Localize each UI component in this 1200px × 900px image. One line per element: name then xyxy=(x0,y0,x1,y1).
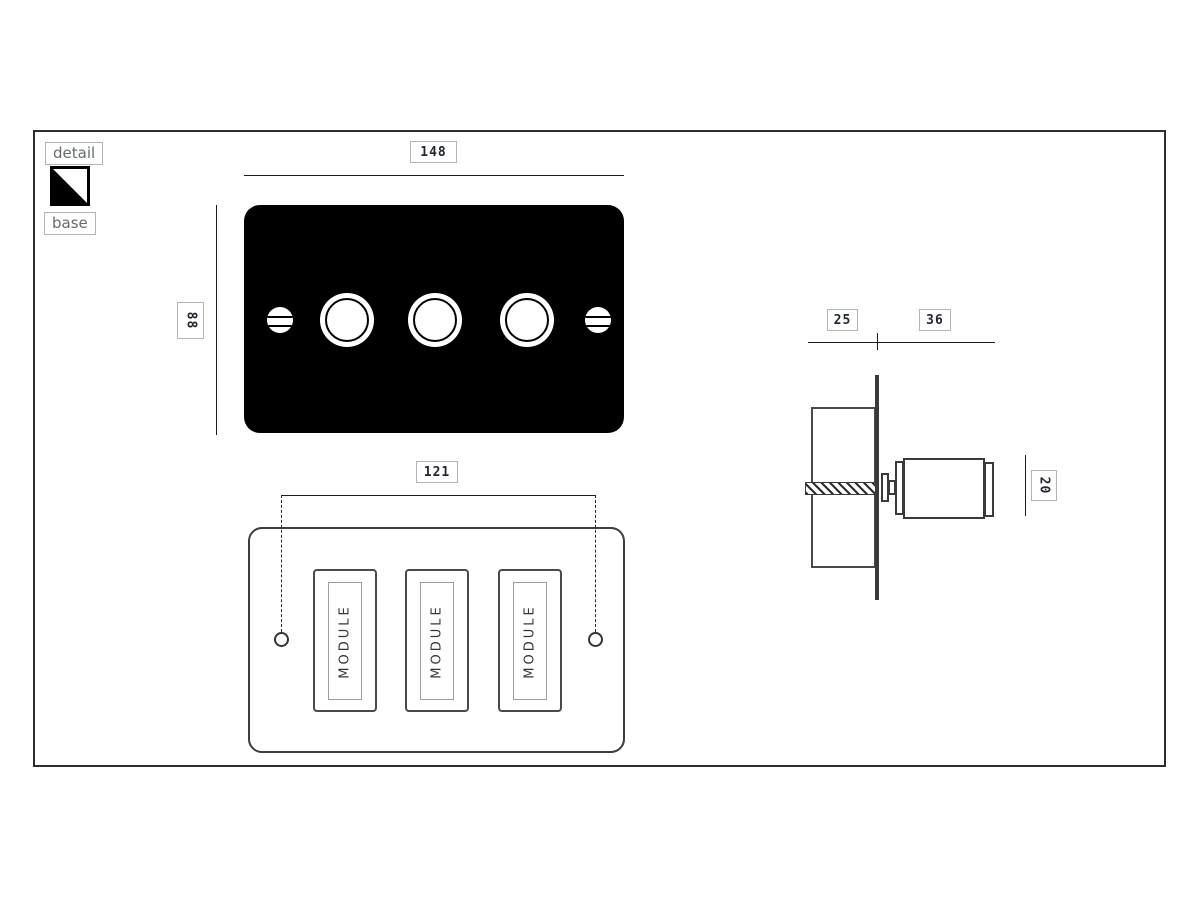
dim-tick-depth xyxy=(877,333,878,350)
technical-drawing-canvas: detail base 148 88 121 MODULE xyxy=(0,0,1200,900)
dim-label-20: 20 xyxy=(1031,470,1057,501)
knob-cap-right-profile xyxy=(984,462,994,517)
threaded-rod-icon xyxy=(805,482,877,495)
knob-body-profile xyxy=(903,458,985,519)
dim-line-knob-height xyxy=(1025,455,1026,516)
dim-label-25: 25 xyxy=(827,309,858,331)
dim-value-25: 25 xyxy=(834,313,852,328)
dim-value-20: 20 xyxy=(1037,477,1052,495)
faceplate-profile xyxy=(875,375,879,600)
dim-label-36: 36 xyxy=(919,309,951,331)
dim-value-36: 36 xyxy=(926,313,944,328)
dim-line-depth xyxy=(808,342,995,343)
side-view: 25 36 20 xyxy=(0,0,1200,900)
